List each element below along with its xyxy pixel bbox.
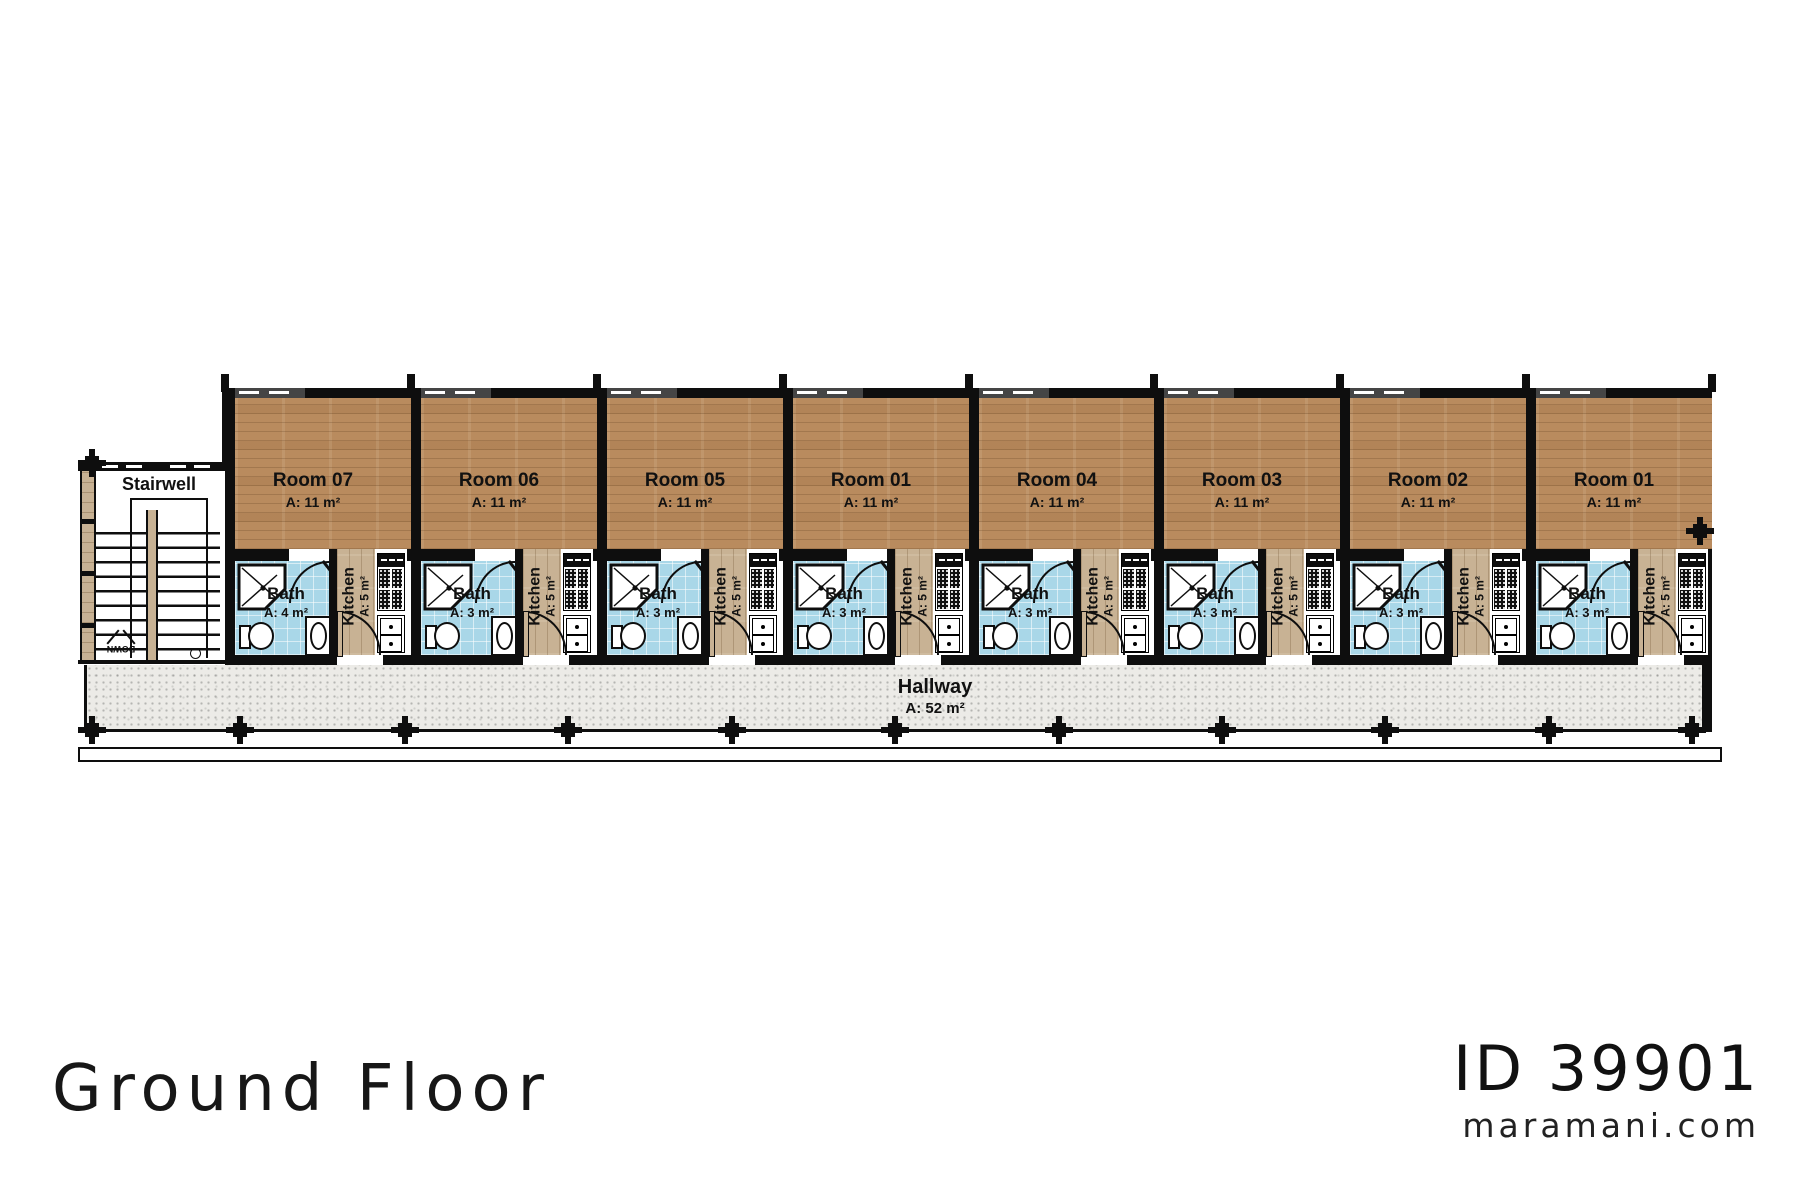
- stairwell-label: Stairwell: [96, 474, 222, 495]
- bottom-wall: [569, 655, 597, 665]
- window-dash: [1198, 391, 1218, 394]
- cabinet-cell: [566, 618, 588, 635]
- stove-burners: [1308, 569, 1331, 609]
- stove-knob: [1133, 559, 1139, 561]
- bottom-wall: [383, 655, 411, 665]
- hallway-left-wall: [84, 665, 87, 731]
- kitchen-sink-cabinet: [377, 615, 405, 653]
- stove-knob: [1496, 559, 1502, 561]
- stair-down-label: DOWN: [98, 644, 144, 654]
- column-marker: [398, 723, 412, 737]
- toilet-icon: [1540, 622, 1574, 648]
- stove-icon: [1121, 553, 1149, 611]
- stove-knob: [1326, 559, 1332, 561]
- cabinet-cell: [1495, 618, 1517, 635]
- toilet-bowl: [992, 622, 1018, 650]
- column-marker: [1542, 723, 1556, 737]
- kitchen-appliance-column: [375, 549, 407, 655]
- column-marker: [85, 723, 99, 737]
- toilet-icon: [1168, 622, 1202, 648]
- cabinet-cell: [1124, 635, 1146, 652]
- stove-knob: [1682, 559, 1688, 561]
- bottom-wall: [1684, 655, 1712, 665]
- stove-burners: [937, 569, 960, 609]
- stove-knob: [1141, 559, 1147, 561]
- unit-left-wall: [1526, 388, 1536, 665]
- stove-icon: [935, 553, 963, 611]
- bath-kitchen-wall: [701, 549, 709, 665]
- hallway-label: Hallway: [835, 676, 1035, 699]
- room-area-label: A: 11 m²: [1534, 494, 1694, 510]
- room-label: Room 07: [233, 470, 393, 492]
- sink-basin: [310, 622, 327, 650]
- bottom-wall: [1127, 655, 1155, 665]
- cabinet-cell: [566, 635, 588, 652]
- wall-column-tick: [1150, 374, 1158, 392]
- stove-controls: [1122, 554, 1148, 567]
- wall-notch: [82, 519, 94, 524]
- sink-basin: [1239, 622, 1256, 650]
- partition-wall: [421, 549, 475, 561]
- cabinet-cell: [1681, 635, 1703, 652]
- unit-left-wall: [1340, 388, 1350, 665]
- cabinet-cell: [752, 635, 774, 652]
- wall-notch: [82, 623, 94, 628]
- toilet-bowl: [1177, 622, 1203, 650]
- room-unit: Room 03 A: 11 m² Bath A: 3 m² Kitchen A:…: [1154, 388, 1340, 665]
- hallway-door-leaf: [523, 611, 529, 657]
- wall-column-tick: [1336, 374, 1344, 392]
- bottom-wall: [793, 655, 895, 665]
- unit-left-wall: [783, 388, 793, 665]
- stove-knob: [381, 559, 387, 561]
- sink-basin: [868, 622, 885, 650]
- window-dash: [455, 391, 475, 394]
- window-dash: [1013, 391, 1033, 394]
- unit-left-wall: [969, 388, 979, 665]
- partition-wall: [1536, 549, 1590, 561]
- stove-knob: [955, 559, 961, 561]
- unit-left-wall: [1154, 388, 1164, 665]
- room-area-label: A: 11 m²: [1162, 494, 1322, 510]
- stairwell-side-wall: [80, 471, 96, 663]
- sink-basin: [1425, 622, 1442, 650]
- window-dash: [425, 391, 445, 394]
- column-marker: [1685, 723, 1699, 737]
- column-marker: [561, 723, 575, 737]
- window-dash: [239, 391, 259, 394]
- column-marker: [1052, 723, 1066, 737]
- bottom-wall: [235, 655, 337, 665]
- hallway-door-leaf: [895, 611, 901, 657]
- website-label: maramani.com: [1340, 1106, 1760, 1145]
- column-marker: [888, 723, 902, 737]
- room-area-label: A: 11 m²: [977, 494, 1137, 510]
- cabinet-cell: [1309, 635, 1331, 652]
- stove-burners: [379, 569, 402, 609]
- stove-icon: [749, 553, 777, 611]
- partition-wall: [607, 549, 661, 561]
- stove-burners: [565, 569, 588, 609]
- bath-kitchen-wall: [1073, 549, 1081, 665]
- bottom-wall: [1164, 655, 1266, 665]
- partition-wall: [1164, 549, 1218, 561]
- stove-knob: [575, 559, 581, 561]
- stove-knob: [1690, 559, 1696, 561]
- wall-column-tick: [965, 374, 973, 392]
- room-area-label: A: 11 m²: [233, 494, 393, 510]
- stove-controls: [936, 554, 962, 567]
- partition-wall: [979, 549, 1033, 561]
- wall-column-tick: [407, 374, 415, 392]
- cabinet-cell: [938, 618, 960, 635]
- stair-flight-right: [158, 532, 220, 660]
- stove-controls: [750, 554, 776, 567]
- partition-wall: [793, 549, 847, 561]
- bath-kitchen-wall: [1444, 549, 1452, 665]
- stove-controls: [378, 554, 404, 567]
- stove-knob: [1318, 559, 1324, 561]
- hallway-door-leaf: [1266, 611, 1272, 657]
- cabinet-cell: [938, 635, 960, 652]
- hallway-door-leaf: [337, 611, 343, 657]
- stove-knob: [567, 559, 573, 561]
- cabinet-cell: [1681, 618, 1703, 635]
- stove-burners: [751, 569, 774, 609]
- toilet-bowl: [248, 622, 274, 650]
- hallway-door-leaf: [1081, 611, 1087, 657]
- stove-knob: [947, 559, 953, 561]
- stair-center-stringer: [146, 510, 158, 660]
- column-marker: [725, 723, 739, 737]
- window-dash: [126, 465, 142, 468]
- room-unit: Room 02 A: 11 m² Bath A: 3 m² Kitchen A:…: [1340, 388, 1526, 665]
- bath-kitchen-wall: [1630, 549, 1638, 665]
- window-dash: [1354, 391, 1374, 394]
- stove-icon: [1306, 553, 1334, 611]
- window-dash: [194, 465, 210, 468]
- walkway-line-top: [78, 747, 1722, 749]
- room-label: Room 06: [419, 470, 579, 492]
- stove-knob: [1504, 559, 1510, 561]
- unit-left-wall: [225, 388, 235, 665]
- toilet-icon: [425, 622, 459, 648]
- bath-kitchen-wall: [887, 549, 895, 665]
- walkway-end-left: [78, 747, 80, 762]
- partition-wall: [1350, 549, 1404, 561]
- room-area-label: A: 11 m²: [605, 494, 765, 510]
- bottom-wall: [607, 655, 709, 665]
- room-label: Room 02: [1348, 470, 1508, 492]
- kitchen-sink-cabinet: [935, 615, 963, 653]
- window-dash: [797, 391, 817, 394]
- room-unit: Room 01 A: 11 m² Bath A: 3 m² Kitchen A:…: [783, 388, 969, 665]
- wall-notch: [82, 571, 94, 576]
- stove-knob: [939, 559, 945, 561]
- bottom-wall: [1498, 655, 1526, 665]
- unit-left-wall: [597, 388, 607, 665]
- toilet-bowl: [620, 622, 646, 650]
- kitchen-appliance-column: [1676, 549, 1708, 655]
- bottom-wall: [1536, 655, 1638, 665]
- room-area-label: A: 11 m²: [1348, 494, 1508, 510]
- column-marker: [1215, 723, 1229, 737]
- wall-column-tick: [221, 374, 229, 392]
- partition-wall: [235, 549, 289, 561]
- wall-column-tick: [779, 374, 787, 392]
- hallway-door-leaf: [1638, 611, 1644, 657]
- plan-id: ID 39901: [1340, 1032, 1760, 1105]
- kitchen-sink-cabinet: [1492, 615, 1520, 653]
- bottom-wall: [1312, 655, 1340, 665]
- room-unit: Room 07 A: 11 m² Bath A: 4 m² Kitchen A:…: [225, 388, 411, 665]
- stove-knob: [1698, 559, 1704, 561]
- hallway-area-label: A: 52 m²: [835, 700, 1035, 717]
- kitchen-appliance-column: [933, 549, 965, 655]
- stove-burners: [1494, 569, 1517, 609]
- stove-knob: [761, 559, 767, 561]
- sink-basin: [496, 622, 513, 650]
- hallway-door-leaf: [1452, 611, 1458, 657]
- kitchen-appliance-column: [1490, 549, 1522, 655]
- cabinet-cell: [380, 635, 402, 652]
- cabinet-cell: [752, 618, 774, 635]
- window-dash: [641, 391, 661, 394]
- toilet-icon: [239, 622, 273, 648]
- column-marker: [85, 456, 99, 470]
- bath-kitchen-wall: [329, 549, 337, 665]
- room-label: Room 05: [605, 470, 765, 492]
- column-marker: [233, 723, 247, 737]
- window-dash: [611, 391, 631, 394]
- bath-kitchen-wall: [515, 549, 523, 665]
- window-dash: [1540, 391, 1560, 394]
- window-dash: [1168, 391, 1188, 394]
- bottom-wall: [421, 655, 523, 665]
- cabinet-cell: [1309, 618, 1331, 635]
- stairwell: Stairwell DOWN: [78, 462, 225, 665]
- walkway-line-bottom: [78, 760, 1722, 762]
- column-marker: [1378, 723, 1392, 737]
- kitchen-appliance-column: [1119, 549, 1151, 655]
- cabinet-cell: [1124, 618, 1146, 635]
- bottom-wall: [941, 655, 969, 665]
- room-label: Room 01: [1534, 470, 1694, 492]
- window-dash: [269, 391, 289, 394]
- window-dash: [1570, 391, 1590, 394]
- room-label: Room 04: [977, 470, 1137, 492]
- toilet-bowl: [1549, 622, 1575, 650]
- stair-flight-left: [96, 532, 146, 660]
- stove-knob: [753, 559, 759, 561]
- kitchen-sink-cabinet: [563, 615, 591, 653]
- stove-knob: [389, 559, 395, 561]
- stove-knob: [1125, 559, 1131, 561]
- column-marker: [1693, 524, 1707, 538]
- kitchen-sink-cabinet: [1678, 615, 1706, 653]
- stove-knob: [583, 559, 589, 561]
- window-dash: [983, 391, 1003, 394]
- window-dash: [170, 465, 186, 468]
- cabinet-cell: [380, 618, 402, 635]
- kitchen-sink-cabinet: [1306, 615, 1334, 653]
- room-unit: Room 01 A: 11 m² Bath A: 3 m² Kitchen A:…: [1526, 388, 1712, 665]
- stove-burners: [1680, 569, 1703, 609]
- stove-icon: [1678, 553, 1706, 611]
- bottom-wall: [979, 655, 1081, 665]
- wall-column-tick: [1708, 374, 1716, 392]
- stove-controls: [1307, 554, 1333, 567]
- cabinet-cell: [1495, 635, 1517, 652]
- toilet-icon: [983, 622, 1017, 648]
- room-label: Room 01: [791, 470, 951, 492]
- toilet-bowl: [1363, 622, 1389, 650]
- stove-controls: [1679, 554, 1705, 567]
- toilet-icon: [1354, 622, 1388, 648]
- page-title: Ground Floor: [52, 1052, 551, 1126]
- toilet-bowl: [806, 622, 832, 650]
- stove-knob: [397, 559, 403, 561]
- column-circle-symbol: [190, 648, 201, 659]
- stove-knob: [1512, 559, 1518, 561]
- stove-icon: [377, 553, 405, 611]
- stairwell-bottom-line: [78, 660, 225, 664]
- stove-icon: [1492, 553, 1520, 611]
- stove-controls: [564, 554, 590, 567]
- toilet-icon: [611, 622, 645, 648]
- stove-controls: [1493, 554, 1519, 567]
- wall-column-tick: [1522, 374, 1530, 392]
- sink-basin: [682, 622, 699, 650]
- bottom-wall: [755, 655, 783, 665]
- wall-column-tick: [593, 374, 601, 392]
- room-unit: Room 06 A: 11 m² Bath A: 3 m² Kitchen A:…: [411, 388, 597, 665]
- bottom-wall: [1350, 655, 1452, 665]
- toilet-bowl: [434, 622, 460, 650]
- window-dash: [827, 391, 847, 394]
- kitchen-appliance-column: [747, 549, 779, 655]
- bath-kitchen-wall: [1258, 549, 1266, 665]
- kitchen-sink-cabinet: [1121, 615, 1149, 653]
- stove-icon: [563, 553, 591, 611]
- sink-basin: [1054, 622, 1071, 650]
- window-dash: [1384, 391, 1404, 394]
- room-label: Room 03: [1162, 470, 1322, 492]
- kitchen-sink-cabinet: [749, 615, 777, 653]
- room-area-label: A: 11 m²: [791, 494, 951, 510]
- kitchen-appliance-column: [1304, 549, 1336, 655]
- hallway-door-leaf: [709, 611, 715, 657]
- walkway-end-right: [1720, 747, 1722, 762]
- kitchen-appliance-column: [561, 549, 593, 655]
- sink-basin: [1611, 622, 1628, 650]
- floor-plan-page: Room 07 A: 11 m² Bath A: 4 m² Kitchen A:…: [0, 0, 1800, 1200]
- toilet-icon: [797, 622, 831, 648]
- room-unit: Room 04 A: 11 m² Bath A: 3 m² Kitchen A:…: [969, 388, 1155, 665]
- unit-left-wall: [411, 388, 421, 665]
- room-unit: Room 05 A: 11 m² Bath A: 3 m² Kitchen A:…: [597, 388, 783, 665]
- stove-knob: [1310, 559, 1316, 561]
- stove-burners: [1123, 569, 1146, 609]
- stove-knob: [769, 559, 775, 561]
- room-area-label: A: 11 m²: [419, 494, 579, 510]
